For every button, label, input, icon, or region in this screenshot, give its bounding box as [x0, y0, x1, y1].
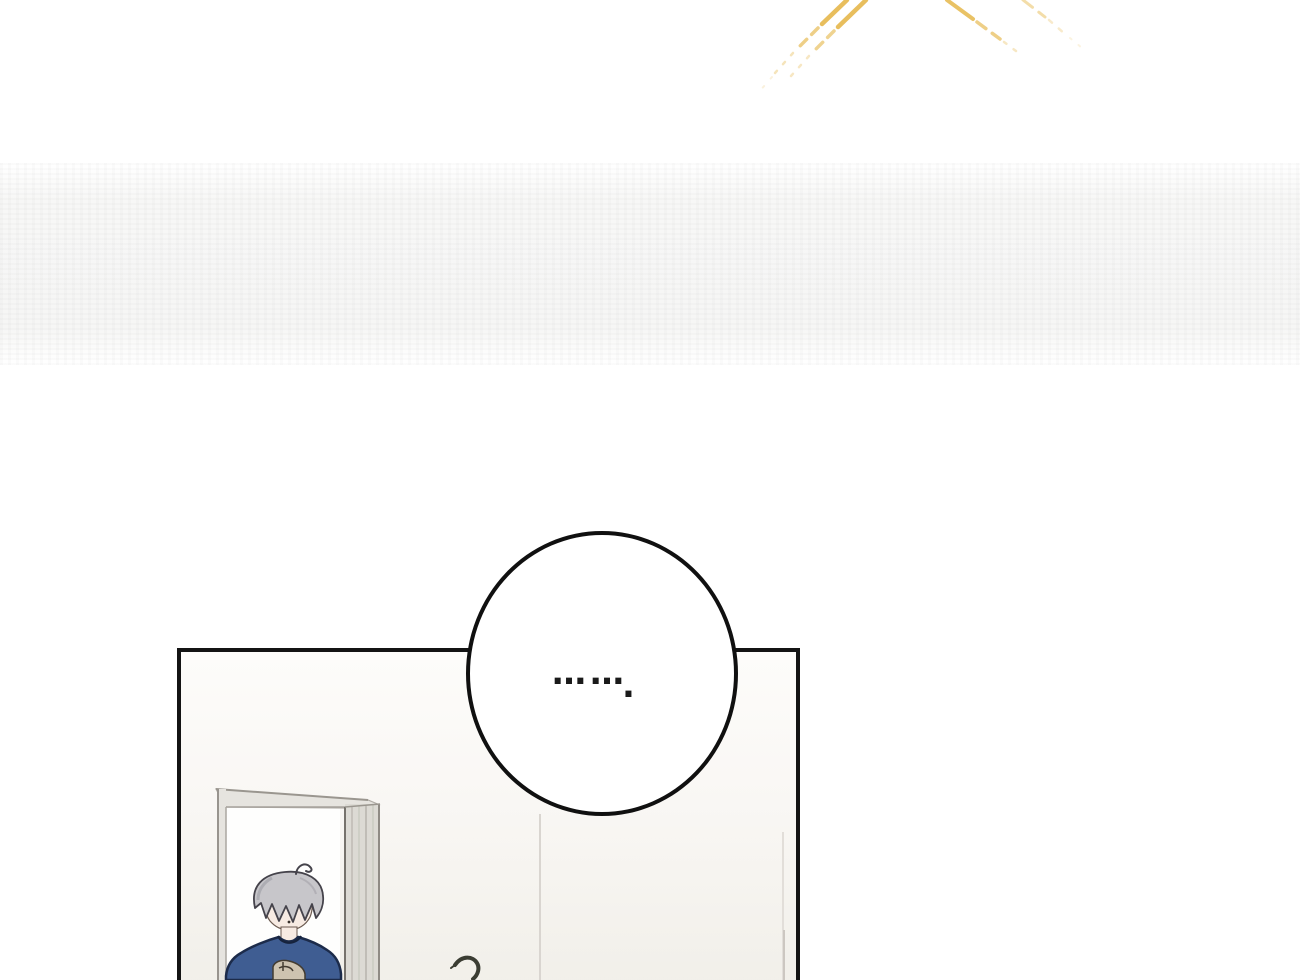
ray-segment — [977, 22, 1000, 39]
ray-segment — [758, 77, 772, 93]
ray-segment — [1023, 0, 1045, 17]
plant-leaf-icon — [455, 958, 478, 979]
ray-segment — [1070, 38, 1082, 48]
character-mouth — [288, 921, 291, 924]
ellipsis-period: . — [622, 666, 635, 706]
ray-segment — [797, 28, 818, 49]
ray-segment — [947, 0, 973, 19]
paper-texture-band — [0, 163, 1300, 365]
door-frame-right-jamb — [345, 804, 380, 980]
ray-segment — [775, 53, 793, 73]
ray-segment — [791, 56, 809, 76]
ray-segment — [1049, 20, 1066, 35]
light-rays-icon — [0, 0, 1300, 130]
bubble-ellipsis-text: ……. — [552, 653, 641, 693]
ellipsis-dots: …… — [552, 653, 628, 693]
plant-leaf-tip — [451, 965, 455, 968]
ray-segment — [1004, 42, 1020, 54]
speech-bubble: ……. — [466, 531, 738, 816]
ray-segment — [813, 31, 834, 52]
comic-page: ……. — [0, 0, 1300, 980]
